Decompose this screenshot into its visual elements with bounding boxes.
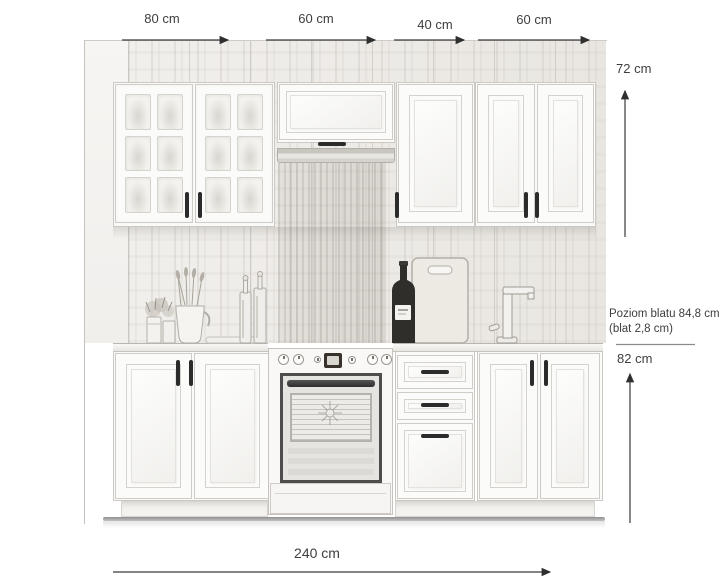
stove-display-icon xyxy=(324,353,342,368)
glass-pane xyxy=(157,136,183,172)
stove-knob-icon xyxy=(381,354,392,365)
glass-pane xyxy=(237,94,263,130)
dim-label-82cm: 82 cm xyxy=(617,351,652,366)
glass-pane xyxy=(125,177,151,213)
glass-pane xyxy=(157,94,183,130)
glass-pane xyxy=(157,177,183,213)
drawer-handle-icon xyxy=(421,370,449,374)
oven-window xyxy=(290,393,372,442)
door-panel xyxy=(553,100,578,207)
door-groove xyxy=(488,95,524,212)
upper-door-40 xyxy=(398,84,473,223)
base-door-60-right xyxy=(540,353,600,499)
door-groove xyxy=(409,95,462,212)
oven-trim xyxy=(288,458,374,464)
door-handle-icon xyxy=(189,360,193,386)
dim-label-80cm: 80 cm xyxy=(130,11,194,26)
stove-knob-icon xyxy=(293,354,304,365)
door-groove xyxy=(205,364,260,488)
floor-shadow xyxy=(103,521,605,528)
drawer-panel xyxy=(408,434,462,488)
glass-pane xyxy=(125,136,151,172)
dim-label-72cm: 72 cm xyxy=(616,61,651,76)
door-panel xyxy=(493,100,519,207)
base-door-80-left xyxy=(115,353,192,499)
oven-handle-icon xyxy=(287,380,375,387)
glass-pane xyxy=(205,94,231,130)
worktop-thickness-note: (blat 2,8 cm) xyxy=(609,323,673,335)
plinth-right xyxy=(395,501,595,517)
drawer-handle-icon xyxy=(421,403,449,407)
oven-trim xyxy=(288,448,374,454)
kitchen-dimension-diagram: 80 cm 60 cm 40 cm 60 cm 72 cm Poziom bla… xyxy=(0,0,720,587)
door-panel xyxy=(495,369,522,483)
door-handle-icon xyxy=(395,192,399,218)
drawer-groove xyxy=(404,430,466,492)
door-panel xyxy=(210,369,255,483)
door-panel xyxy=(556,369,584,483)
glass-door-right xyxy=(195,84,273,223)
base-door-80-right xyxy=(194,353,271,499)
stove-knob-icon xyxy=(278,354,289,365)
stove-drawer xyxy=(270,483,391,514)
stove-knob-icon xyxy=(348,356,356,364)
door-groove xyxy=(286,91,386,133)
door-handle-icon xyxy=(318,142,346,146)
stove-knob-icon xyxy=(314,356,321,363)
upper-door-60-right xyxy=(537,84,594,223)
cooker-stove-icon xyxy=(268,348,393,515)
dim-label-40cm: 40 cm xyxy=(403,17,467,32)
hood-flip-door xyxy=(279,84,393,140)
door-groove xyxy=(126,364,181,488)
glass-pane xyxy=(205,136,231,172)
door-handle-icon xyxy=(524,192,528,218)
upper-cabinet-shadow xyxy=(113,227,596,239)
worktop-right xyxy=(393,343,603,352)
glass-door-left xyxy=(115,84,193,223)
drawer-handle-icon xyxy=(421,434,449,438)
dim-label-240cm: 240 cm xyxy=(285,545,349,561)
door-handle-icon xyxy=(530,360,534,386)
glass-pane xyxy=(205,177,231,213)
cooker-hood-icon xyxy=(277,148,395,163)
worktop-level-note: Poziom blatu 84,8 cm xyxy=(609,308,720,320)
oven-trim xyxy=(288,469,374,475)
door-handle-icon xyxy=(544,360,548,386)
door-handle-icon xyxy=(176,360,180,386)
door-groove xyxy=(551,364,589,488)
glass-pane xyxy=(237,177,263,213)
door-panel xyxy=(290,95,382,129)
worktop-left xyxy=(113,343,268,352)
door-panel xyxy=(131,369,176,483)
door-panel xyxy=(414,100,457,207)
door-handle-icon xyxy=(535,192,539,218)
door-handle-icon xyxy=(198,192,202,218)
glass-pane xyxy=(125,94,151,130)
door-groove xyxy=(548,95,583,212)
dim-label-60cm-a: 60 cm xyxy=(284,11,348,26)
door-groove xyxy=(490,364,527,488)
oven-door xyxy=(280,373,382,483)
stove-knob-icon xyxy=(367,354,378,365)
glass-pane xyxy=(237,136,263,172)
wall-shade-under-hood xyxy=(278,163,386,343)
plinth-left xyxy=(121,501,268,517)
door-handle-icon xyxy=(185,192,189,218)
dim-label-60cm-b: 60 cm xyxy=(502,12,566,27)
